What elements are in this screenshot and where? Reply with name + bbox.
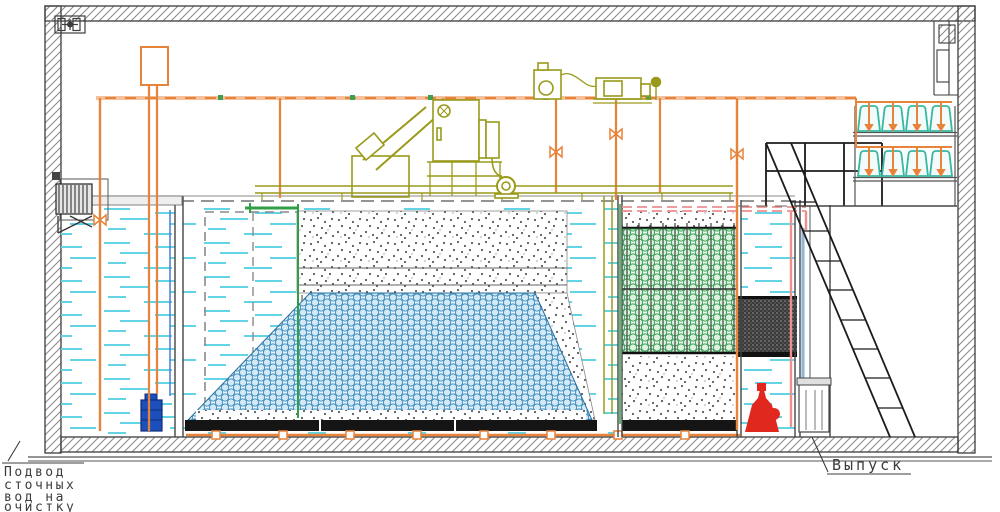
screw-press bbox=[352, 100, 518, 198]
floor-slab bbox=[61, 437, 958, 452]
roof-slab bbox=[45, 6, 975, 21]
blower-unit-2 bbox=[593, 78, 661, 104]
outlet-label-text: Выпуск bbox=[832, 456, 904, 474]
lamella-module bbox=[737, 296, 797, 357]
biofilter-tank bbox=[622, 211, 737, 431]
outlet-channel bbox=[797, 206, 831, 432]
press-stand bbox=[352, 156, 409, 197]
inlet-label-line4: очистку bbox=[4, 500, 76, 512]
service-walkway bbox=[255, 186, 733, 200]
press-discharge-pump bbox=[497, 177, 515, 195]
drawing-canvas: Подвод сточных вод на очистку Выпуск bbox=[0, 0, 1000, 512]
inlet-leader-line bbox=[8, 441, 20, 461]
aeration-diffuser-band bbox=[185, 420, 597, 431]
support-gravel-layer bbox=[622, 356, 737, 420]
plant-section-drawing: Подвод сточных вод на очистку Выпуск bbox=[0, 0, 1000, 512]
dosing-tanks bbox=[858, 106, 952, 176]
exhaust-duct bbox=[934, 21, 958, 95]
blower-unit-1 bbox=[534, 63, 596, 99]
submersible-pump-blue bbox=[141, 394, 162, 431]
right-wall bbox=[958, 6, 975, 453]
